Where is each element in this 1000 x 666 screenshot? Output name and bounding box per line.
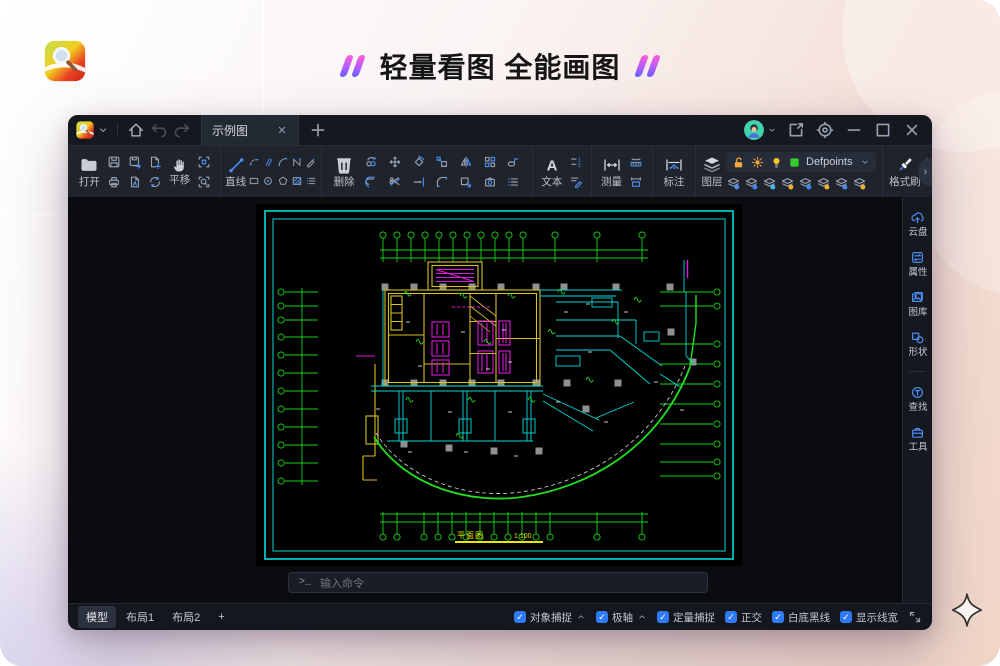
tab-layout1[interactable]: 布局1: [118, 606, 162, 628]
toggle-snap[interactable]: ✓ 定量捕捉: [657, 610, 715, 625]
hatch-icon[interactable]: [291, 175, 303, 187]
sparkle-icon: [948, 591, 986, 629]
add-layout-button[interactable]: +: [210, 608, 232, 626]
zoom-search-icon[interactable]: [197, 175, 211, 189]
toolbar-expander[interactable]: ›: [919, 159, 932, 185]
save-as-icon[interactable]: [128, 155, 142, 169]
sidebar-item-find[interactable]: 查找: [908, 385, 928, 413]
new-tab-button[interactable]: [308, 120, 328, 140]
offset-icon[interactable]: [364, 175, 378, 189]
unlock-icon[interactable]: [732, 156, 745, 169]
export-pdf-icon[interactable]: [128, 175, 142, 189]
redo-button[interactable]: [172, 120, 192, 140]
sun-icon[interactable]: [751, 156, 764, 169]
layer-state-icon[interactable]: [852, 176, 867, 191]
scale-icon[interactable]: [435, 155, 449, 169]
plan-scale-text: 1:100: [514, 533, 532, 540]
polyline-icon[interactable]: [248, 156, 260, 168]
checkbox-checked[interactable]: ✓: [514, 611, 526, 623]
toolbar-group-measure: 测量: [592, 146, 653, 197]
app-menu-logo[interactable]: [76, 121, 94, 139]
slash-decoration-icon: [343, 55, 362, 77]
format-brush-icon: [895, 155, 915, 175]
checkbox-checked[interactable]: ✓: [657, 611, 669, 623]
checkbox-checked[interactable]: ✓: [596, 611, 608, 623]
region-icon[interactable]: [483, 175, 497, 189]
sidebar-item-shapes[interactable]: 形状: [908, 330, 928, 358]
minimize-button[interactable]: [844, 120, 864, 140]
document-tab[interactable]: 示例图: [201, 115, 299, 145]
toolbar-group-annotate: 标注: [653, 146, 696, 197]
layer-state-icon[interactable]: [762, 176, 777, 191]
stretch-icon[interactable]: [506, 155, 520, 169]
shapes-icon: [910, 330, 925, 345]
svg-text:2: 2: [577, 163, 580, 169]
cad-sheet[interactable]: 平面图 1:100: [256, 204, 742, 566]
toolbar-group-text: A 文本 12: [533, 146, 592, 197]
toggle-object-snap[interactable]: ✓ 对象捕捉: [514, 610, 586, 625]
new-file-icon[interactable]: [148, 155, 162, 169]
refresh-icon[interactable]: [148, 175, 162, 189]
more-modify-icon[interactable]: [506, 175, 520, 189]
pan-button[interactable]: 平移: [169, 157, 190, 186]
fit-screen-icon[interactable]: [197, 155, 211, 169]
parallel-lines-icon[interactable]: [262, 156, 274, 168]
text-icon: A: [542, 155, 562, 175]
divider: [909, 371, 926, 372]
dim-ruler-icon[interactable]: [629, 155, 643, 169]
dim-rect-icon[interactable]: [629, 175, 643, 189]
extend-icon[interactable]: [412, 175, 426, 189]
bulb-icon[interactable]: [770, 156, 783, 169]
layer-state-row: [726, 176, 876, 191]
layer-state-icon[interactable]: [726, 176, 741, 191]
gallery-icon: [910, 290, 925, 305]
tab-title: 示例图: [212, 122, 248, 139]
slash-decoration-icon: [638, 55, 657, 77]
checkbox-checked[interactable]: ✓: [840, 611, 852, 623]
app-window: 示例图 打开: [68, 115, 932, 630]
titlebar: 示例图: [68, 115, 932, 145]
layers-icon: [702, 155, 722, 175]
polygon-icon[interactable]: [277, 175, 289, 187]
rotate-icon[interactable]: [412, 155, 426, 169]
command-input[interactable]: >_ 输入命令: [288, 572, 708, 593]
trash-icon: [334, 155, 354, 175]
annotate-icon: [664, 155, 684, 175]
fullscreen-icon[interactable]: [908, 610, 922, 624]
tab-model[interactable]: 模型: [78, 606, 116, 628]
trim-icon[interactable]: [388, 175, 402, 189]
rectangle-icon[interactable]: [248, 175, 260, 187]
avatar[interactable]: [744, 120, 764, 140]
drawing-canvas[interactable]: 平面图 1:100 >_ 输入命令: [68, 197, 902, 603]
sidebar-item-gallery[interactable]: 图库: [908, 290, 928, 318]
account-menu[interactable]: [744, 120, 777, 140]
delete-button[interactable]: 删除: [334, 155, 355, 188]
array-icon[interactable]: [483, 155, 497, 169]
line-icon: [226, 155, 246, 175]
chevron-up-icon[interactable]: [637, 612, 647, 622]
terminal-prompt-icon: >_: [299, 577, 311, 588]
plan-title-text: 平面图: [457, 531, 484, 540]
fillet-icon[interactable]: [435, 175, 449, 189]
toggle-lineweight[interactable]: ✓ 显示线宽: [840, 610, 898, 625]
properties-icon: [910, 250, 925, 265]
hand-icon: [172, 157, 188, 173]
drawing-title: 平面图 1:100: [455, 531, 543, 542]
layer-state-icon[interactable]: [744, 176, 759, 191]
share-button[interactable]: [786, 120, 806, 140]
format-brush-button[interactable]: 格式刷: [889, 155, 921, 188]
close-button[interactable]: [902, 120, 922, 140]
toolbox-icon: [910, 425, 925, 440]
undo-button[interactable]: [149, 120, 169, 140]
text-edit-icon[interactable]: [569, 175, 583, 189]
spline-icon[interactable]: [291, 156, 303, 168]
arc-icon[interactable]: [277, 156, 289, 168]
toolbar-group-draw: 直线: [221, 146, 322, 197]
sketch-icon[interactable]: [305, 156, 317, 168]
toolbar-group-modify: 删除: [322, 146, 533, 197]
save-icon[interactable]: [107, 155, 121, 169]
annotate-button[interactable]: 标注: [664, 155, 685, 188]
checkbox-checked[interactable]: ✓: [725, 611, 737, 623]
layer-select[interactable]: Defpoints: [726, 152, 876, 172]
marketing-card: 轻量看图 全能画图 示例图: [0, 0, 1000, 666]
tab-layout2[interactable]: 布局2: [164, 606, 208, 628]
command-placeholder: 输入命令: [320, 575, 364, 591]
sidebar-item-properties[interactable]: 属性: [908, 250, 928, 278]
svg-text:A: A: [546, 158, 557, 175]
maximize-button[interactable]: [873, 120, 893, 140]
chevron-up-icon[interactable]: [576, 612, 586, 622]
layer-color-swatch: [789, 157, 800, 168]
sidebar-item-tools[interactable]: 工具: [908, 425, 928, 453]
tagline-row: 轻量看图 全能画图: [0, 46, 1000, 86]
find-icon: [910, 385, 925, 400]
right-sidebar: 云盘 属性 图库 形状 查找: [902, 197, 932, 603]
open-button[interactable]: 打开: [79, 155, 100, 188]
toggle-polar[interactable]: ✓ 极轴: [596, 610, 647, 625]
line-button[interactable]: 直线: [225, 155, 246, 188]
toggle-ortho[interactable]: ✓ 正交: [725, 610, 762, 625]
layer-state-icon[interactable]: [834, 176, 849, 191]
layer-state-icon[interactable]: [816, 176, 831, 191]
account-chevron-icon[interactable]: [767, 120, 777, 140]
measure-icon: [602, 155, 622, 175]
folder-icon: [79, 155, 99, 175]
circle-icon[interactable]: [262, 175, 274, 187]
app-menu-chevron-icon[interactable]: [97, 120, 109, 140]
layer-state-icon[interactable]: [780, 176, 795, 191]
mirror-icon[interactable]: [459, 155, 473, 169]
block-icon[interactable]: [459, 175, 473, 189]
layer-button[interactable]: 图层: [702, 155, 723, 188]
cad-drawing: 平面图 1:100: [256, 204, 742, 566]
tab-close-icon[interactable]: [276, 124, 288, 136]
more-draw-icon[interactable]: [305, 175, 317, 187]
home-button[interactable]: [126, 120, 146, 140]
layer-select-chevron-icon[interactable]: [860, 157, 870, 167]
toggle-white-background[interactable]: ✓ 白底黑线: [772, 610, 830, 625]
copy-icon[interactable]: [364, 155, 378, 169]
move-icon[interactable]: [388, 155, 402, 169]
cloud-upload-icon: [910, 210, 925, 225]
checkbox-checked[interactable]: ✓: [772, 611, 784, 623]
layer-current-value: Defpoints: [806, 156, 852, 168]
divider: [117, 123, 118, 137]
statusbar: 模型 布局1 布局2 + ✓ 对象捕捉 ✓ 极轴 ✓ 定量捕捉: [68, 603, 932, 630]
print-icon[interactable]: [107, 175, 121, 189]
text-button[interactable]: A 文本: [541, 155, 562, 188]
toolbar-group-layer: 图层 Defpoints: [696, 146, 883, 197]
settings-button[interactable]: [815, 120, 835, 140]
toolbar-group-file: 打开 平移: [70, 146, 221, 197]
measure-button[interactable]: 测量: [601, 155, 622, 188]
toolbar: 打开 平移: [68, 145, 932, 197]
tagline-text: 轻量看图 全能画图: [380, 46, 621, 86]
numbering-icon[interactable]: 12: [569, 155, 583, 169]
layer-state-icon[interactable]: [798, 176, 813, 191]
sidebar-item-cloud[interactable]: 云盘: [908, 210, 928, 238]
